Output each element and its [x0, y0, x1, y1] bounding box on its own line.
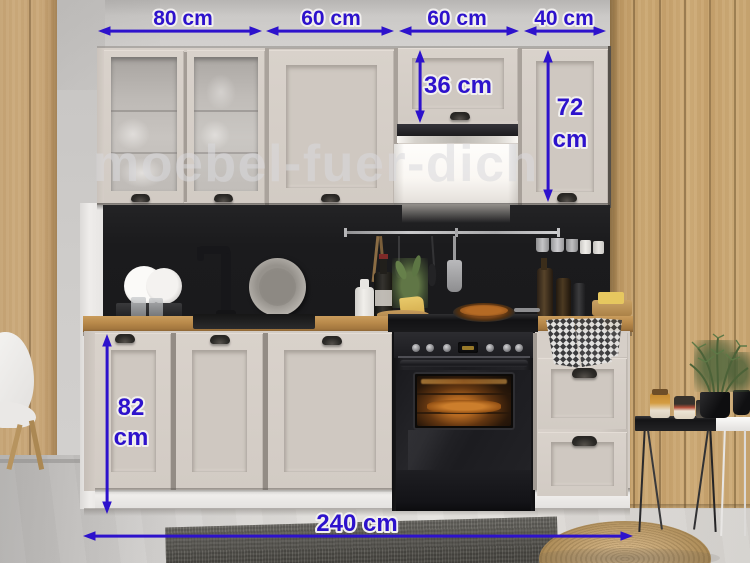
svg-text:72: 72 [557, 94, 584, 121]
svg-text:cm: cm [553, 126, 588, 153]
svg-text:60 cm: 60 cm [427, 7, 487, 30]
svg-text:80 cm: 80 cm [153, 7, 213, 30]
svg-text:82: 82 [118, 394, 145, 421]
svg-text:60 cm: 60 cm [301, 7, 361, 30]
svg-text:cm: cm [114, 424, 149, 451]
svg-text:240 cm: 240 cm [316, 510, 397, 537]
svg-text:36 cm: 36 cm [424, 72, 492, 99]
svg-text:40 cm: 40 cm [534, 7, 594, 30]
